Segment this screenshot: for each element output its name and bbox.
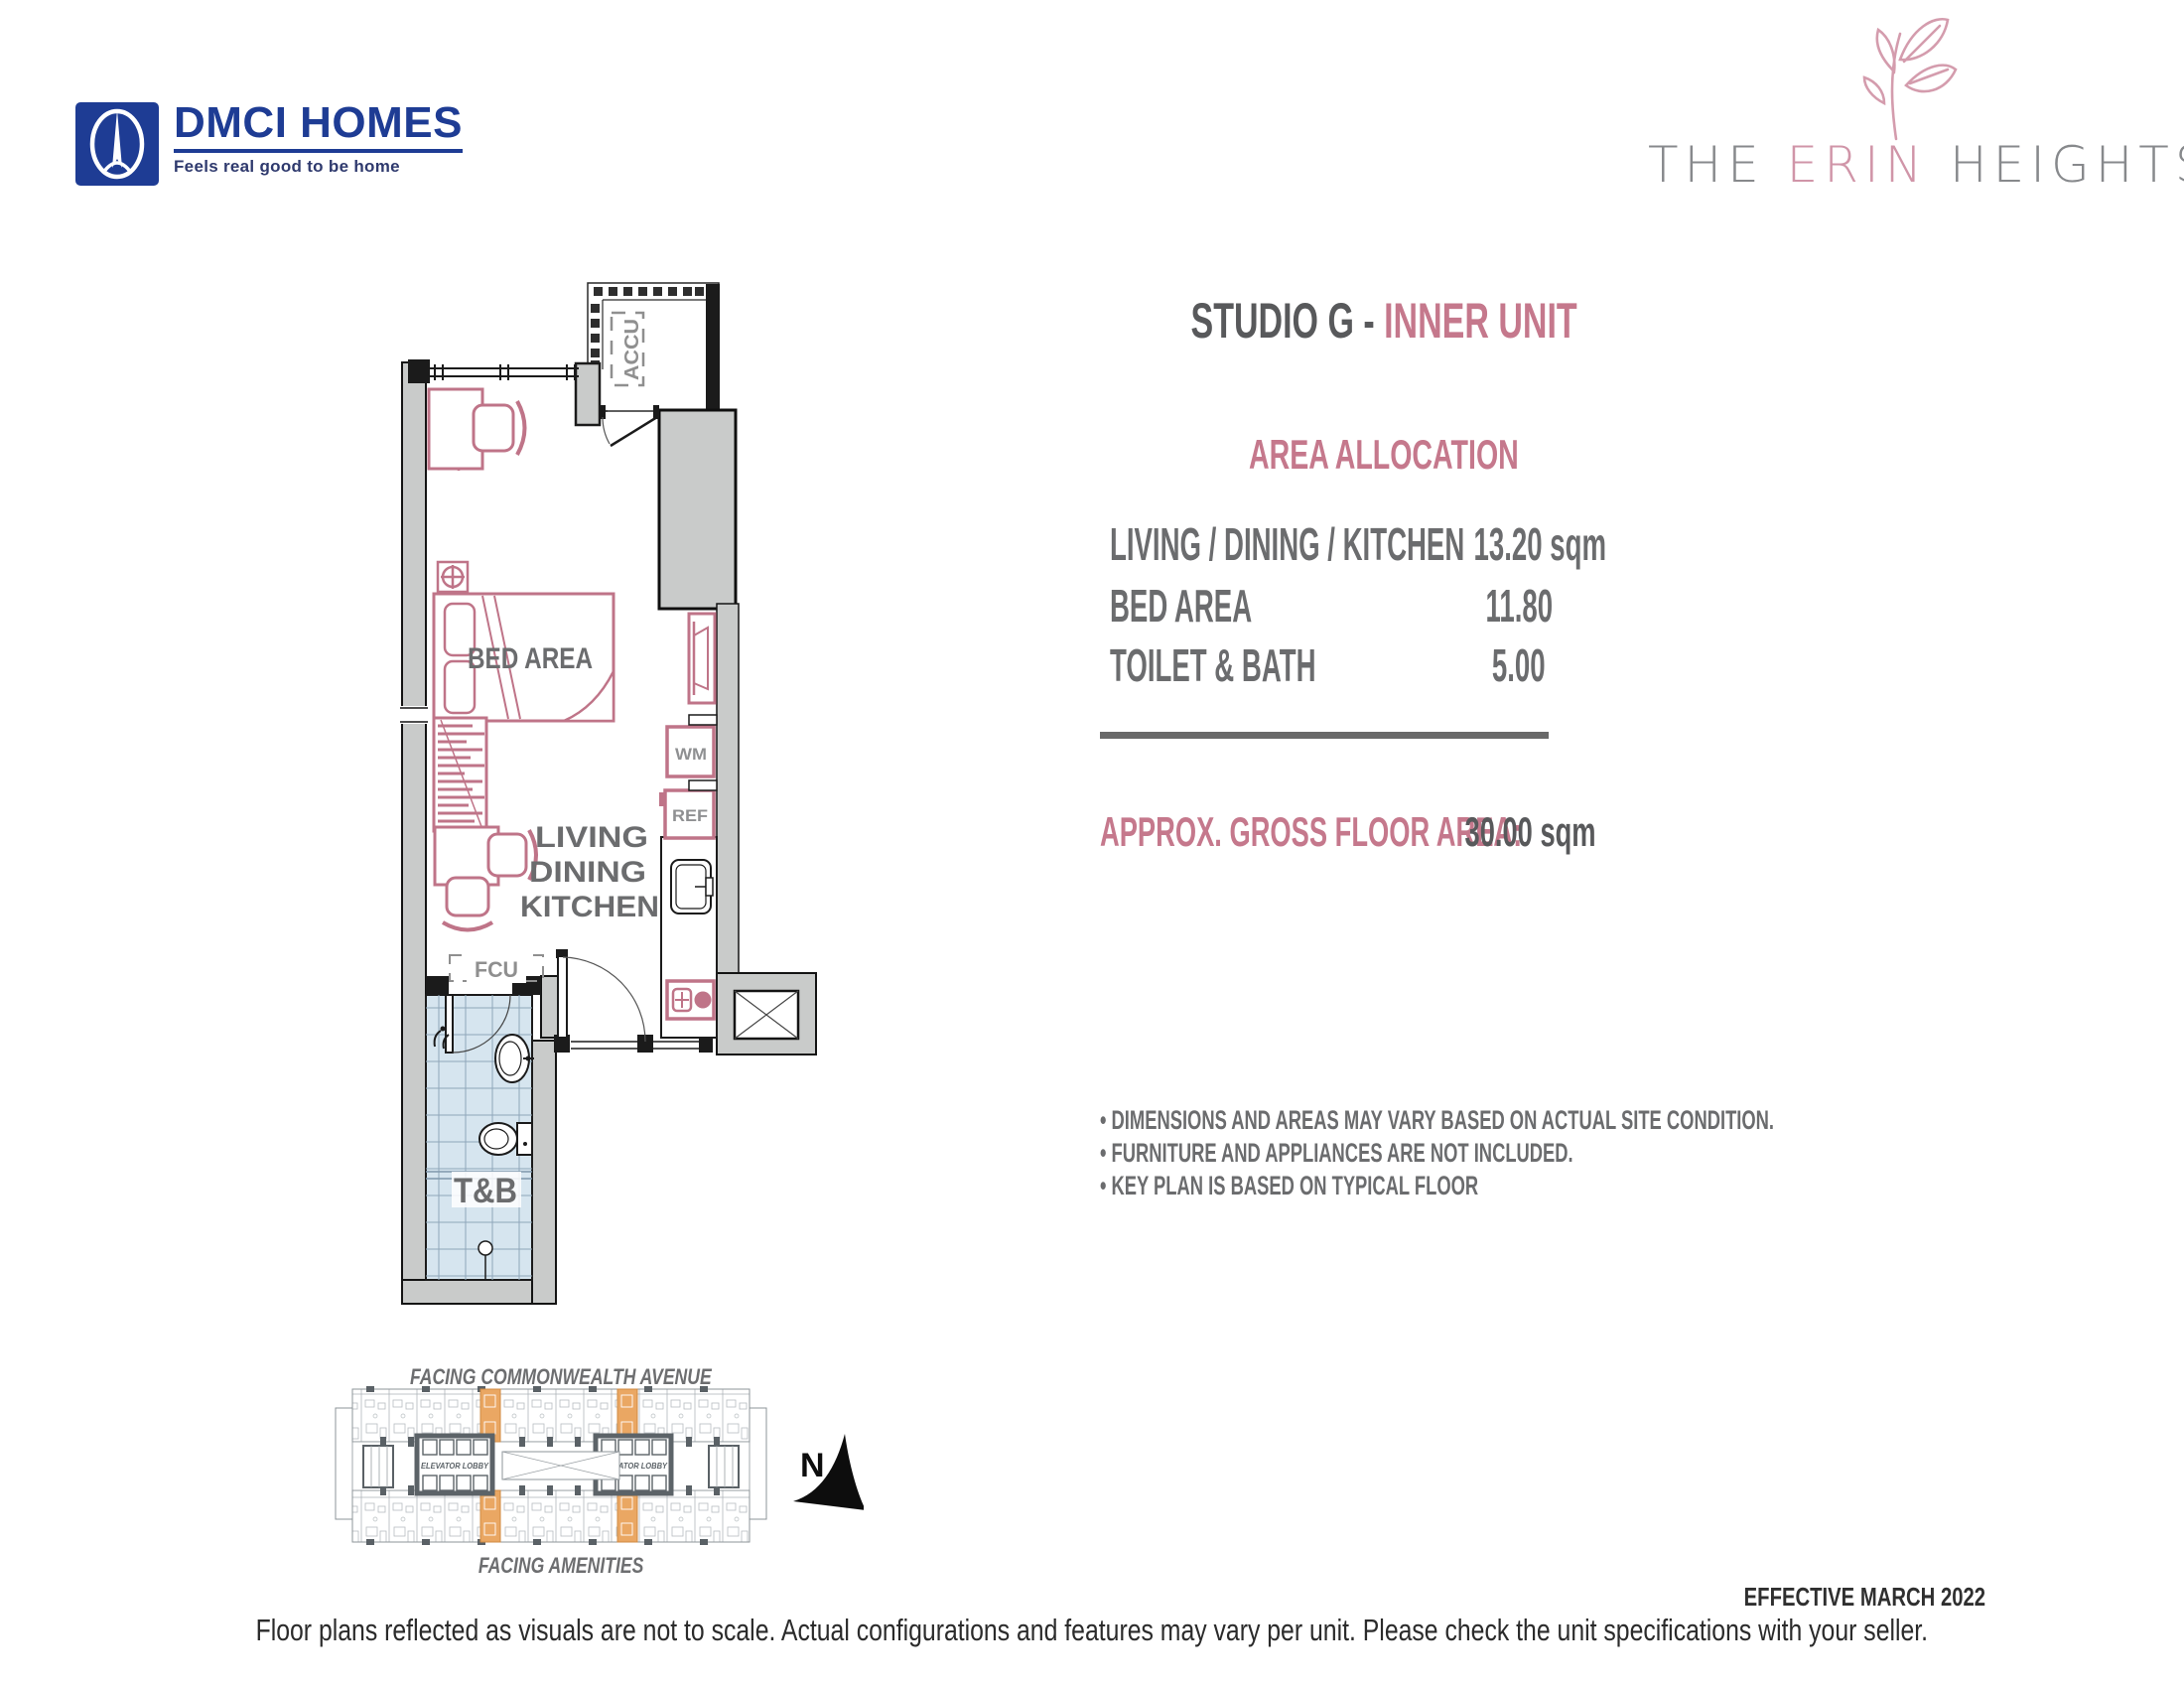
chute-shaft — [717, 973, 816, 1055]
gross-floor-area-value: 30.00 sqm — [1430, 808, 1608, 856]
toilet — [479, 1123, 532, 1155]
disclaimer-notes: DIMENSIONS AND AREAS MAY VARY BASED ON A… — [1100, 1104, 2092, 1202]
gross-floor-area-label: APPROX. GROSS FLOOR AREA: — [1100, 808, 1749, 856]
footer-disclaimer: Floor plans reflected as visuals are not… — [0, 1613, 2184, 1648]
balcony-wall — [706, 284, 720, 411]
svg-text:KITCHEN: KITCHEN — [520, 891, 659, 923]
area-row: LIVING / DINING / KITCHEN — [1110, 517, 1701, 571]
unit-type-label: STUDIO G - — [1190, 293, 1384, 349]
north-arrow-icon: N — [793, 1434, 864, 1510]
refrigerator: REF — [659, 790, 714, 838]
erin-word-the: THE — [1648, 136, 1765, 194]
desk-and-chair — [429, 389, 525, 469]
tb-label: T&B — [454, 1172, 517, 1210]
cooktop — [667, 981, 714, 1019]
utility-shaft — [659, 410, 736, 609]
dmci-tagline: Feels real good to be home — [174, 157, 463, 177]
area-row-value: 11.80 — [1430, 579, 1608, 633]
fcu-label: FCU — [475, 957, 518, 982]
faucet-icon — [706, 878, 713, 896]
shelf — [689, 715, 717, 725]
area-row: BED AREA — [1110, 579, 1347, 633]
central-corridor — [502, 1452, 619, 1479]
living-dining-kitchen-label: LIVING DINING KITCHEN — [520, 821, 659, 923]
north-label: N — [800, 1447, 825, 1484]
leaf-icon — [1835, 12, 1964, 141]
elevator-lobby-left: ELEVATOR LOBBY — [417, 1436, 492, 1493]
section-divider — [1100, 732, 1549, 739]
note-line: DIMENSIONS AND AREAS MAY VARY BASED ON A… — [1100, 1104, 2092, 1137]
accu-balcony: ACCU — [588, 283, 720, 411]
wardrobe — [434, 718, 486, 831]
area-row-value: 5.00 — [1430, 638, 1608, 692]
erin-heights-logo: THE ERIN HEIGHTS — [1648, 10, 2134, 194]
area-row: TOILET & BATH — [1110, 638, 1453, 692]
tb-door — [446, 995, 453, 1053]
stair-core — [363, 1446, 393, 1487]
wm-label: WM — [675, 745, 707, 764]
area-row-label: BED AREA — [1110, 579, 1252, 633]
bed-area-label: BED AREA — [468, 642, 593, 675]
bedroom-window — [430, 364, 579, 380]
stair-core — [709, 1446, 739, 1487]
erin-word-erin: ERIN — [1787, 136, 1928, 194]
effective-date: EFFECTIVE MARCH 2022 — [1549, 1582, 1985, 1613]
note-line: KEY PLAN IS BASED ON TYPICAL FLOOR — [1100, 1170, 2092, 1202]
tv-console — [689, 614, 715, 703]
dmci-homes-logo: DMCI HOMES Feels real good to be home — [74, 101, 463, 187]
floor-plan-brochure-page: { "header": { "dmci": { "name": "DMCI HO… — [0, 0, 2184, 1688]
note-line: FURNITURE AND APPLIANCES ARE NOT INCLUDE… — [1100, 1137, 2092, 1170]
unit-floor-plan: ACCU — [392, 256, 864, 1360]
dmci-logo-rule — [174, 149, 463, 153]
erin-heights-wordmark: THE ERIN HEIGHTS — [1648, 136, 2134, 194]
dmci-logo-text: DMCI HOMES — [174, 101, 463, 145]
key-plan-building: ELEVATOR LOBBY ELEVATOR LOBBY — [336, 1386, 766, 1545]
svg-text:DINING: DINING — [529, 856, 646, 889]
unit-variant-label: INNER UNIT — [1384, 293, 1577, 349]
area-row-value: 13.20 sqm — [1430, 517, 1608, 571]
elevator-lobby-label: ELEVATOR LOBBY — [421, 1462, 489, 1471]
erin-word-heights: HEIGHTS — [1950, 136, 2184, 194]
area-row-label: LIVING / DINING / KITCHEN — [1110, 517, 1464, 571]
facing-amenities-label: FACING AMENITIES — [328, 1553, 794, 1579]
page-title: STUDIO G - INNER UNIT — [1072, 292, 1696, 350]
washing-machine: WM — [667, 727, 714, 776]
area-allocation-heading: AREA ALLOCATION — [1072, 431, 1696, 479]
ref-label: REF — [672, 806, 708, 825]
area-row-label: TOILET & BATH — [1110, 638, 1316, 692]
accu-label: ACCU — [621, 319, 643, 380]
toilet-and-bath: T&B — [426, 995, 534, 1280]
ceiling-fixture-icon — [438, 562, 468, 592]
svg-text:LIVING: LIVING — [535, 821, 648, 854]
shelf — [689, 780, 717, 790]
dmci-logo-icon — [74, 101, 160, 187]
